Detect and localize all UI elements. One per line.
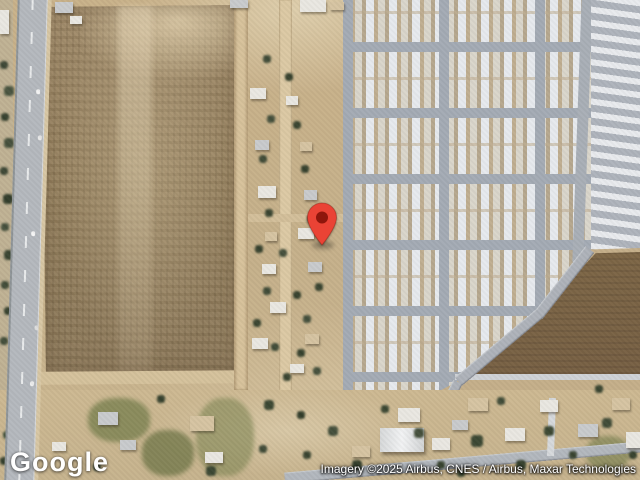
pin-body bbox=[308, 203, 337, 245]
google-logo[interactable]: Google bbox=[10, 447, 109, 478]
building-roof bbox=[120, 440, 136, 450]
building-roof bbox=[255, 140, 269, 150]
lawn-patch bbox=[196, 398, 254, 476]
rural-dirt-road bbox=[279, 0, 292, 392]
map-marker-pin[interactable] bbox=[305, 201, 339, 247]
building-roof bbox=[270, 302, 286, 313]
field-light-streak bbox=[118, 6, 152, 372]
building-roof bbox=[612, 398, 630, 410]
building-roof bbox=[290, 364, 304, 373]
lawn-patch bbox=[142, 430, 194, 476]
building-roof bbox=[55, 2, 73, 13]
building-roof bbox=[252, 338, 268, 349]
building-roof bbox=[258, 186, 276, 198]
building-roof bbox=[265, 232, 277, 241]
building-roof bbox=[578, 424, 598, 437]
building-roof bbox=[540, 400, 558, 412]
building-roof bbox=[262, 264, 276, 274]
building-roof bbox=[300, 142, 312, 151]
barn-roof bbox=[380, 428, 424, 452]
building-roof bbox=[305, 334, 319, 344]
building-roof bbox=[398, 408, 420, 422]
building-roof bbox=[505, 428, 525, 441]
tree-dots bbox=[0, 0, 2, 2]
building-roof bbox=[0, 10, 9, 34]
building-roof bbox=[190, 416, 214, 431]
building-roof bbox=[626, 432, 640, 448]
field-edge-dirt-path bbox=[234, 0, 248, 390]
building-roof bbox=[70, 16, 82, 24]
building-roof bbox=[205, 452, 223, 463]
rv-storage-rows bbox=[591, 0, 640, 262]
map-canvas[interactable]: Google Imagery ©2025 Airbus, CNES / Airb… bbox=[0, 0, 640, 480]
pin-dot bbox=[316, 212, 328, 224]
building-roof bbox=[452, 420, 468, 430]
map-attribution: Imagery ©2025 Airbus, CNES / Airbus, Max… bbox=[321, 462, 636, 476]
building-roof bbox=[98, 412, 118, 425]
building-roof bbox=[230, 0, 248, 8]
highway-lane-line bbox=[18, 0, 34, 480]
building-roof bbox=[352, 446, 370, 457]
building-roof bbox=[304, 190, 317, 200]
building-roof bbox=[330, 2, 344, 10]
building-roof bbox=[432, 438, 450, 450]
building-roof bbox=[300, 0, 326, 12]
building-roof bbox=[286, 96, 298, 105]
building-roof bbox=[308, 262, 322, 272]
building-roof bbox=[468, 398, 488, 411]
field-boundary-lane bbox=[455, 374, 640, 380]
field-bottom-path bbox=[40, 370, 242, 384]
building-roof bbox=[250, 88, 266, 99]
